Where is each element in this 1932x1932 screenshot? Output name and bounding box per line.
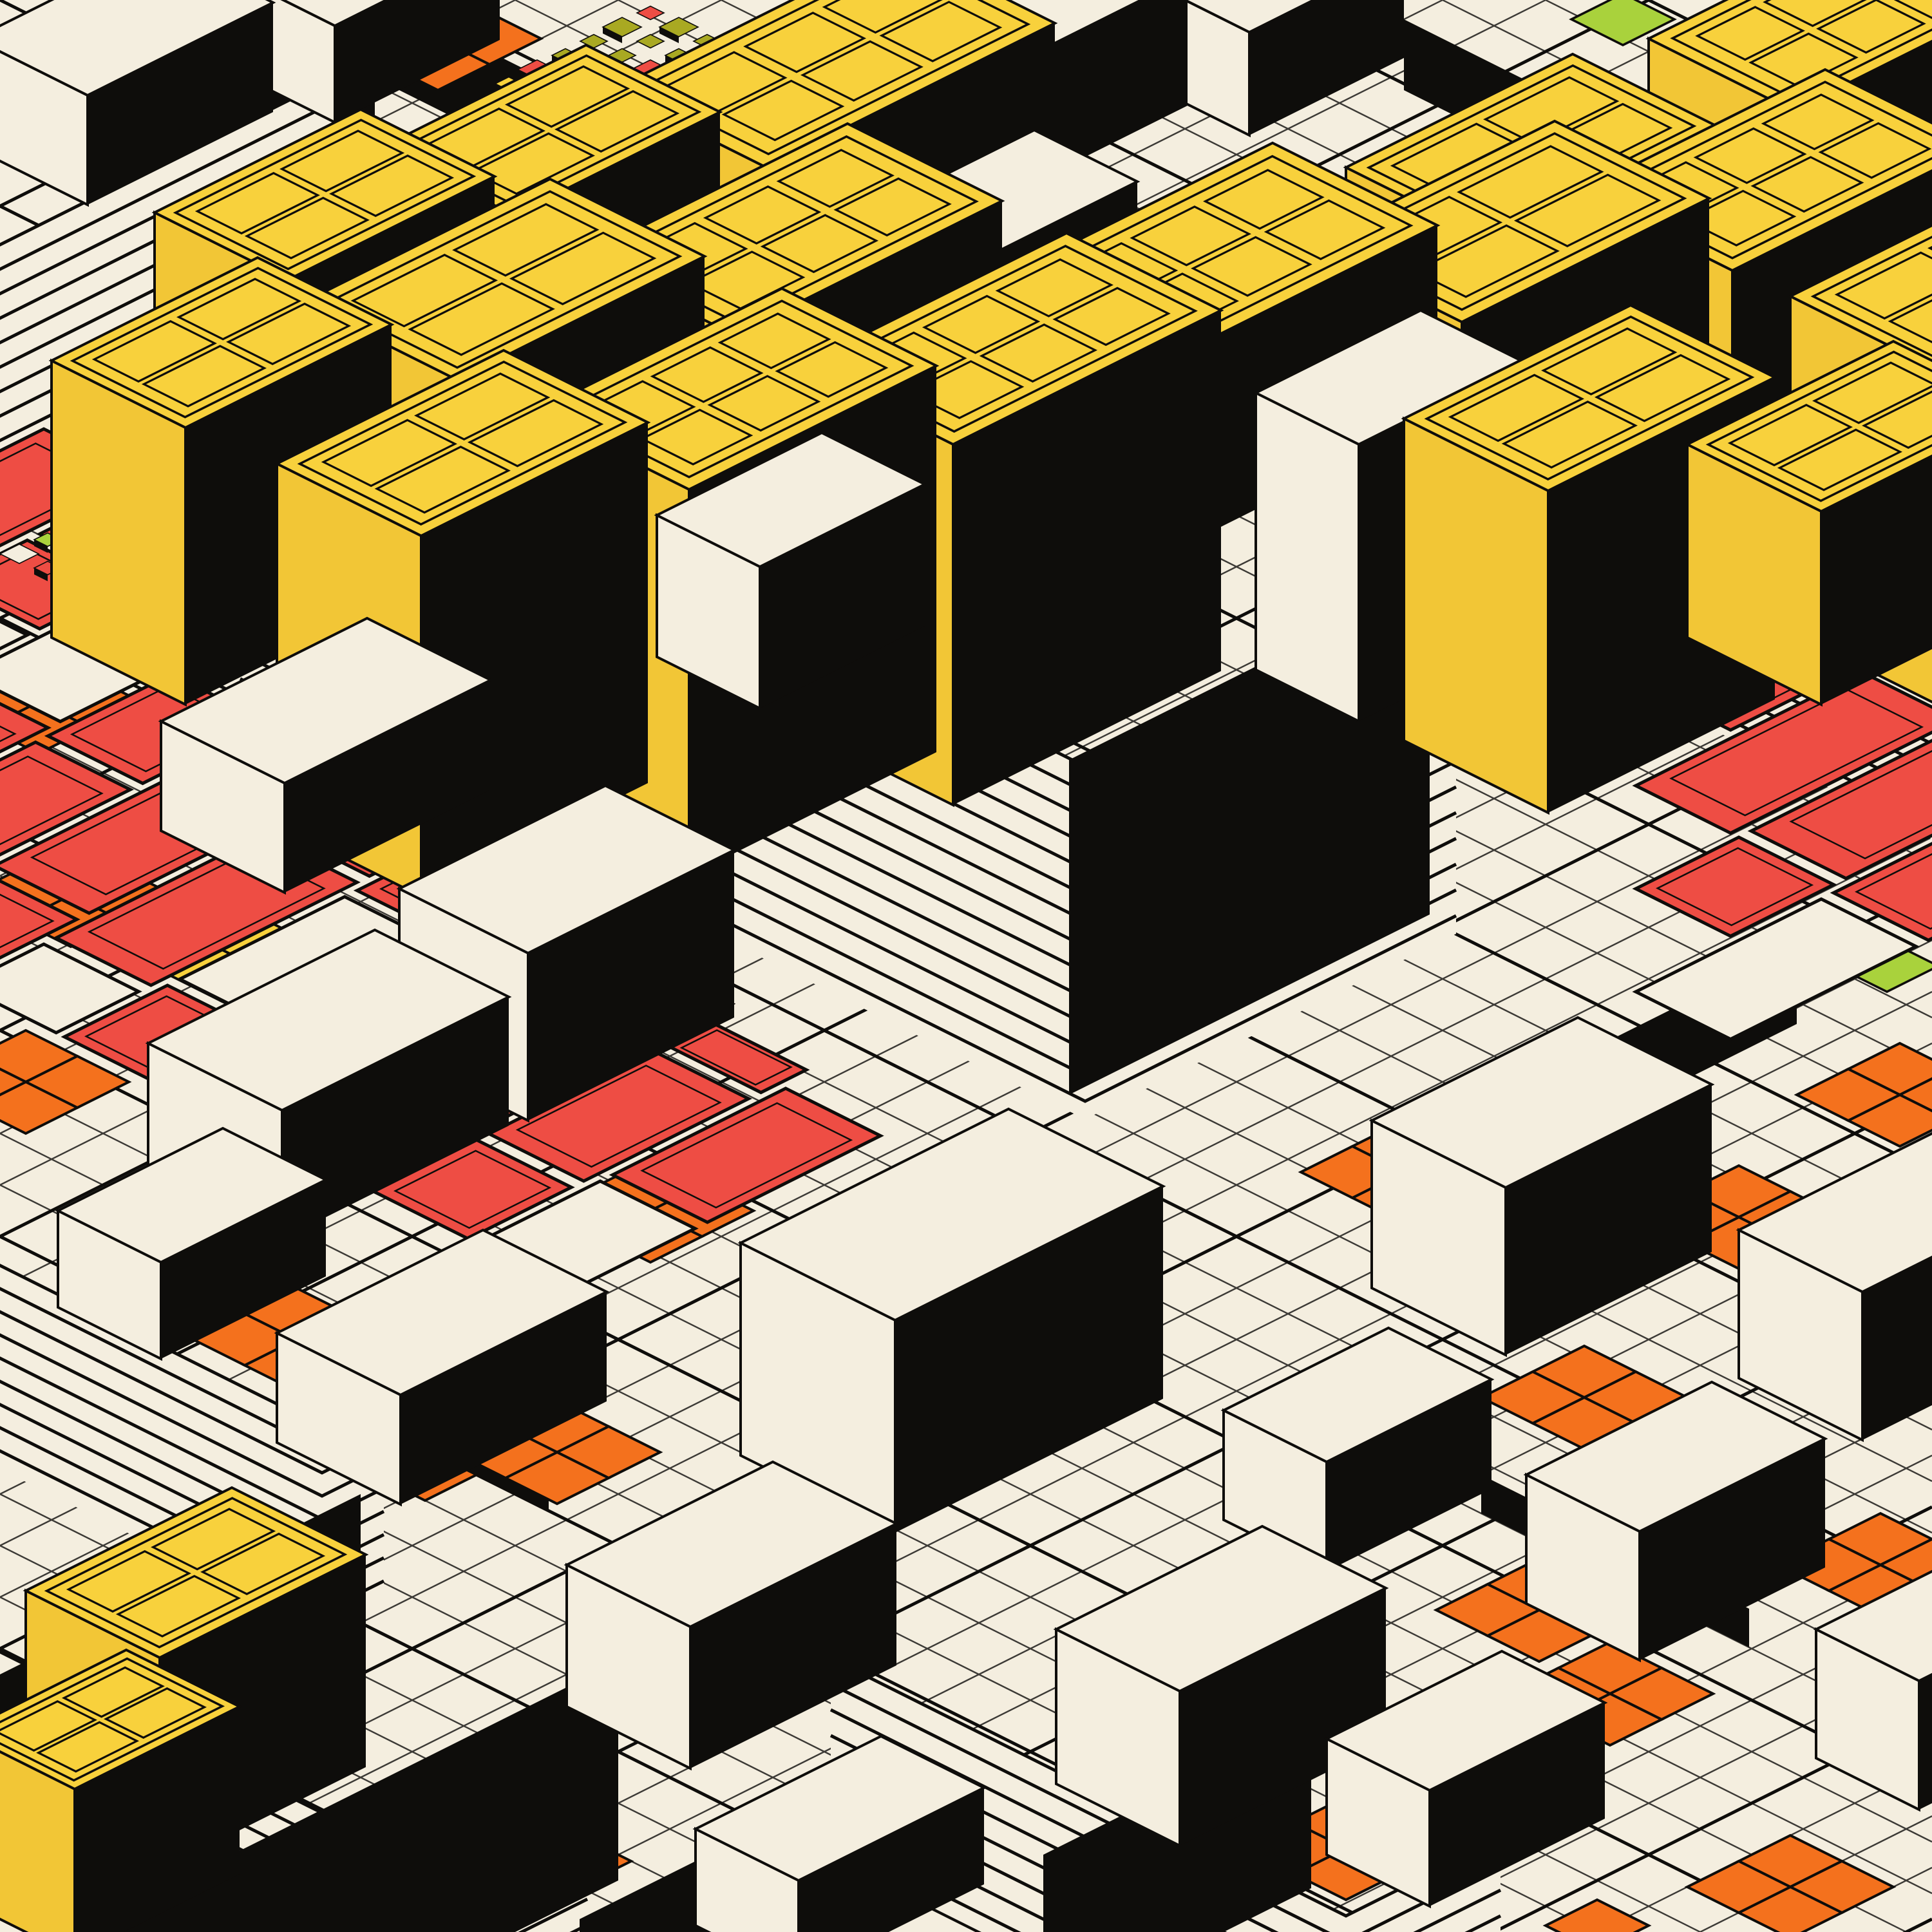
isometric-artwork bbox=[0, 0, 1932, 1932]
artwork-frame bbox=[0, 0, 1932, 1932]
